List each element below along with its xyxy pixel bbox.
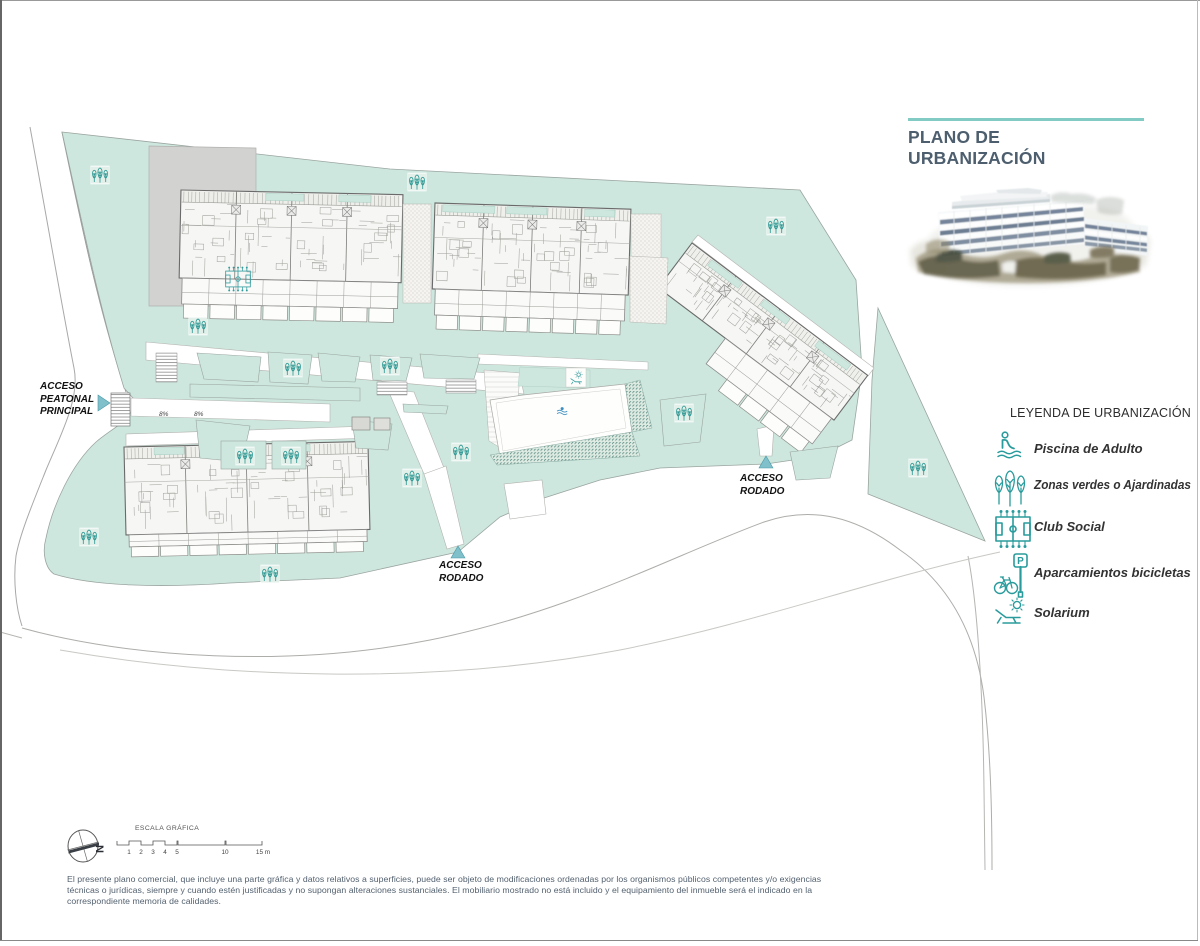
svg-text:P: P bbox=[1017, 556, 1024, 567]
svg-text:3: 3 bbox=[151, 849, 155, 856]
svg-text:Club Social: Club Social bbox=[1034, 519, 1105, 534]
svg-text:15 m: 15 m bbox=[256, 849, 270, 856]
svg-text:10: 10 bbox=[221, 849, 229, 856]
svg-text:Solarium: Solarium bbox=[1034, 605, 1090, 620]
svg-text:8%: 8% bbox=[159, 411, 169, 418]
svg-text:1: 1 bbox=[127, 849, 131, 856]
svg-text:ESCALA GRÁFICA: ESCALA GRÁFICA bbox=[135, 823, 199, 832]
svg-text:Aparcamientos bicicletas: Aparcamientos bicicletas bbox=[1033, 565, 1191, 580]
svg-text:4: 4 bbox=[163, 849, 167, 856]
svg-text:8%: 8% bbox=[194, 411, 204, 418]
svg-text:Piscina de Adulto: Piscina de Adulto bbox=[1034, 441, 1143, 456]
svg-text:Zonas verdes o Ajardinadas: Zonas verdes o Ajardinadas bbox=[1033, 477, 1191, 492]
svg-text:2: 2 bbox=[139, 849, 143, 856]
svg-text:N: N bbox=[93, 845, 105, 853]
svg-text:5: 5 bbox=[175, 849, 179, 856]
